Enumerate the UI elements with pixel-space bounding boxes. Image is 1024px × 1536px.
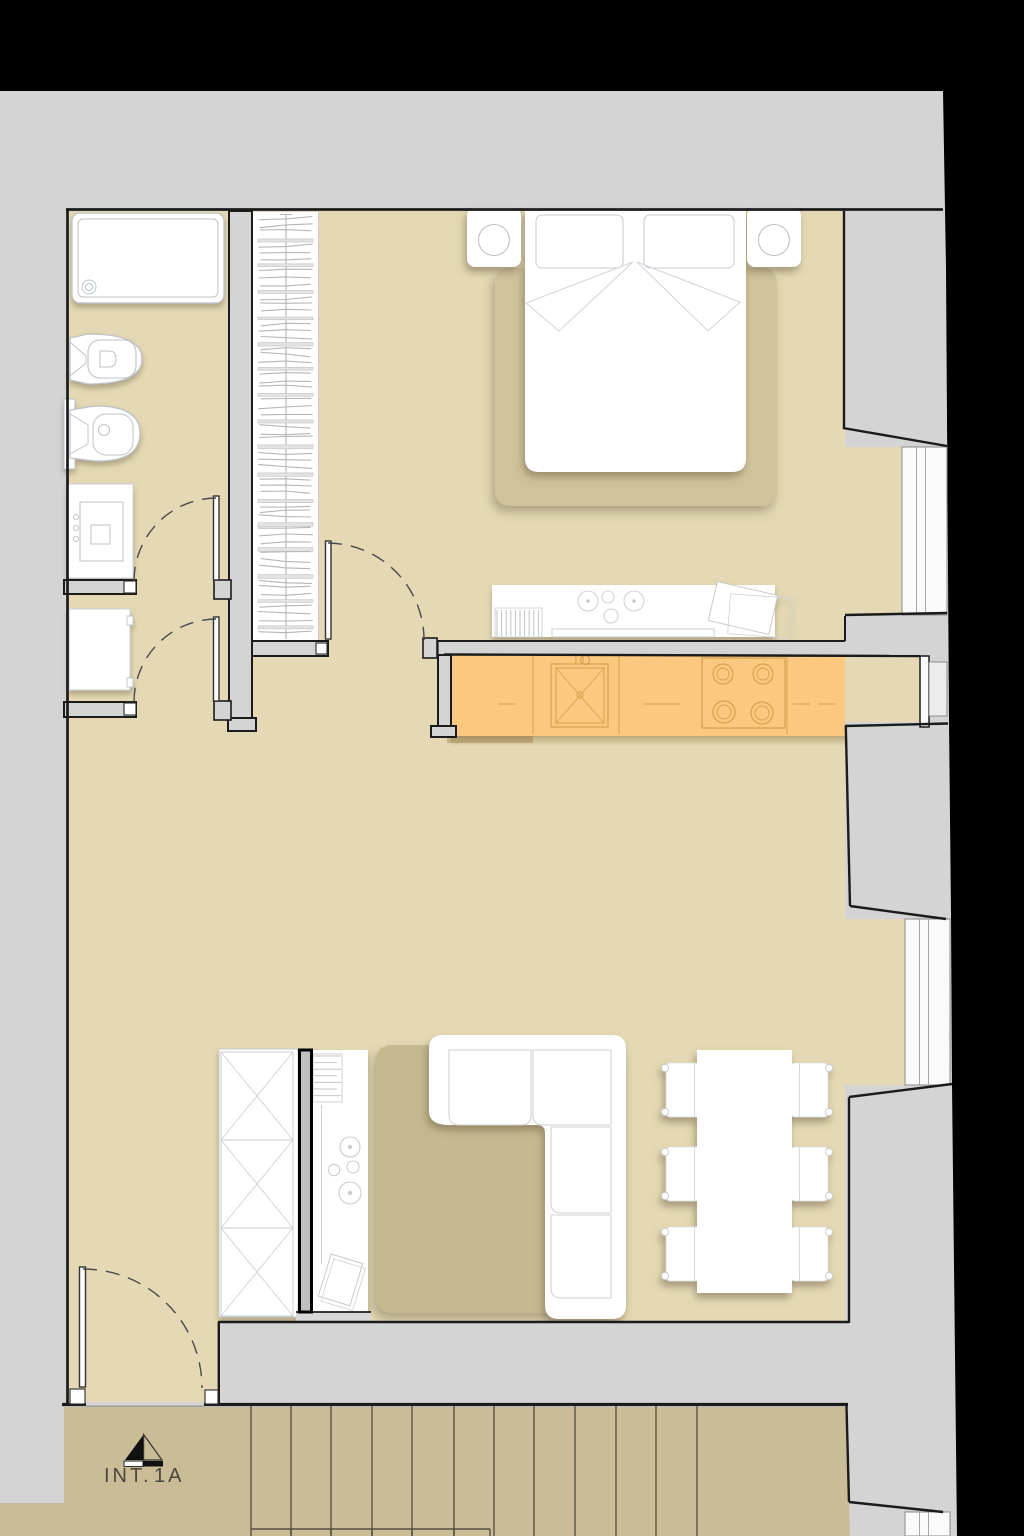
svg-text:INT.: INT.	[104, 1465, 152, 1487]
svg-text:1A: 1A	[154, 1465, 184, 1487]
